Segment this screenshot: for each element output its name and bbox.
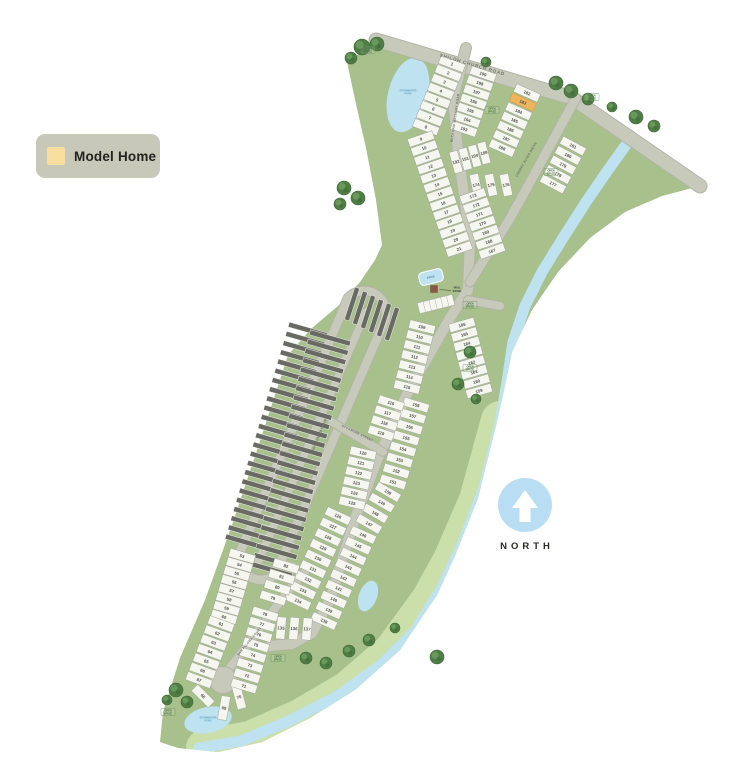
open-space-label: OPENSPACE: [463, 301, 477, 308]
svg-text:SPACE: SPACE: [274, 658, 283, 661]
pond-label: POND: [405, 93, 412, 96]
tree-icon: [452, 378, 464, 390]
tree-icon: [345, 52, 357, 64]
site-plan-page: 1234567891011121314151617181920211991981…: [0, 0, 747, 763]
open-space-label: OPENSPACE: [585, 93, 599, 100]
tree-icon: [549, 76, 563, 90]
model-home-swatch: [47, 147, 65, 165]
svg-text:SPACE: SPACE: [488, 110, 497, 113]
tree-icon: [334, 198, 346, 210]
site-map: 1234567891011121314151617181920211991981…: [0, 0, 747, 763]
mail-kiosk-label: KIOSK: [453, 289, 462, 293]
tree-icon: [390, 623, 400, 633]
north-label: NORTH: [495, 541, 555, 552]
tree-icon: [464, 346, 476, 358]
tree-icon: [363, 634, 375, 646]
pond: [506, 373, 527, 403]
open-space-label: OPENSPACE: [463, 364, 477, 371]
pond: [433, 596, 468, 644]
open-space-label: OPENSPACE: [485, 106, 499, 113]
svg-text:SPACE: SPACE: [466, 305, 475, 308]
tree-icon: [320, 657, 332, 669]
open-space-label: OPENSPACE: [361, 46, 375, 53]
open-space-label: OPENSPACE: [271, 654, 285, 661]
tree-icon: [169, 683, 183, 697]
tree-icon: [162, 695, 172, 705]
tree-icon: [343, 645, 355, 657]
tree-icon: [300, 652, 312, 664]
pond-label: POND: [205, 720, 212, 723]
open-space-label: OPENSPACE: [544, 168, 558, 175]
tree-icon: [430, 650, 444, 664]
mail-kiosk: [431, 286, 438, 293]
tree-icon: [351, 191, 365, 205]
svg-text:SPACE: SPACE: [547, 172, 556, 175]
tree-icon: [471, 394, 481, 404]
tree-icon: [648, 120, 660, 132]
svg-text:SPACE: SPACE: [364, 50, 373, 53]
tree-icon: [337, 181, 351, 195]
lot-number: 136: [290, 626, 298, 632]
tree-icon: [629, 110, 643, 124]
north-arrow-glyph: [498, 478, 552, 532]
tree-icon: [607, 102, 617, 112]
north-indicator: NORTH: [495, 478, 555, 552]
svg-text:SPACE: SPACE: [164, 712, 173, 715]
svg-text:SPACE: SPACE: [588, 97, 597, 100]
svg-text:SPACE: SPACE: [466, 368, 475, 371]
tree-icon: [564, 84, 578, 98]
lot-number: 137: [303, 626, 311, 632]
tree-icon: [181, 696, 193, 708]
lot-number: 135: [277, 625, 285, 631]
legend-model-home: Model Home: [36, 134, 160, 178]
legend-label: Model Home: [74, 149, 156, 164]
open-space-label: OPENSPACE: [161, 708, 175, 715]
north-arrow-icon: [498, 478, 552, 532]
